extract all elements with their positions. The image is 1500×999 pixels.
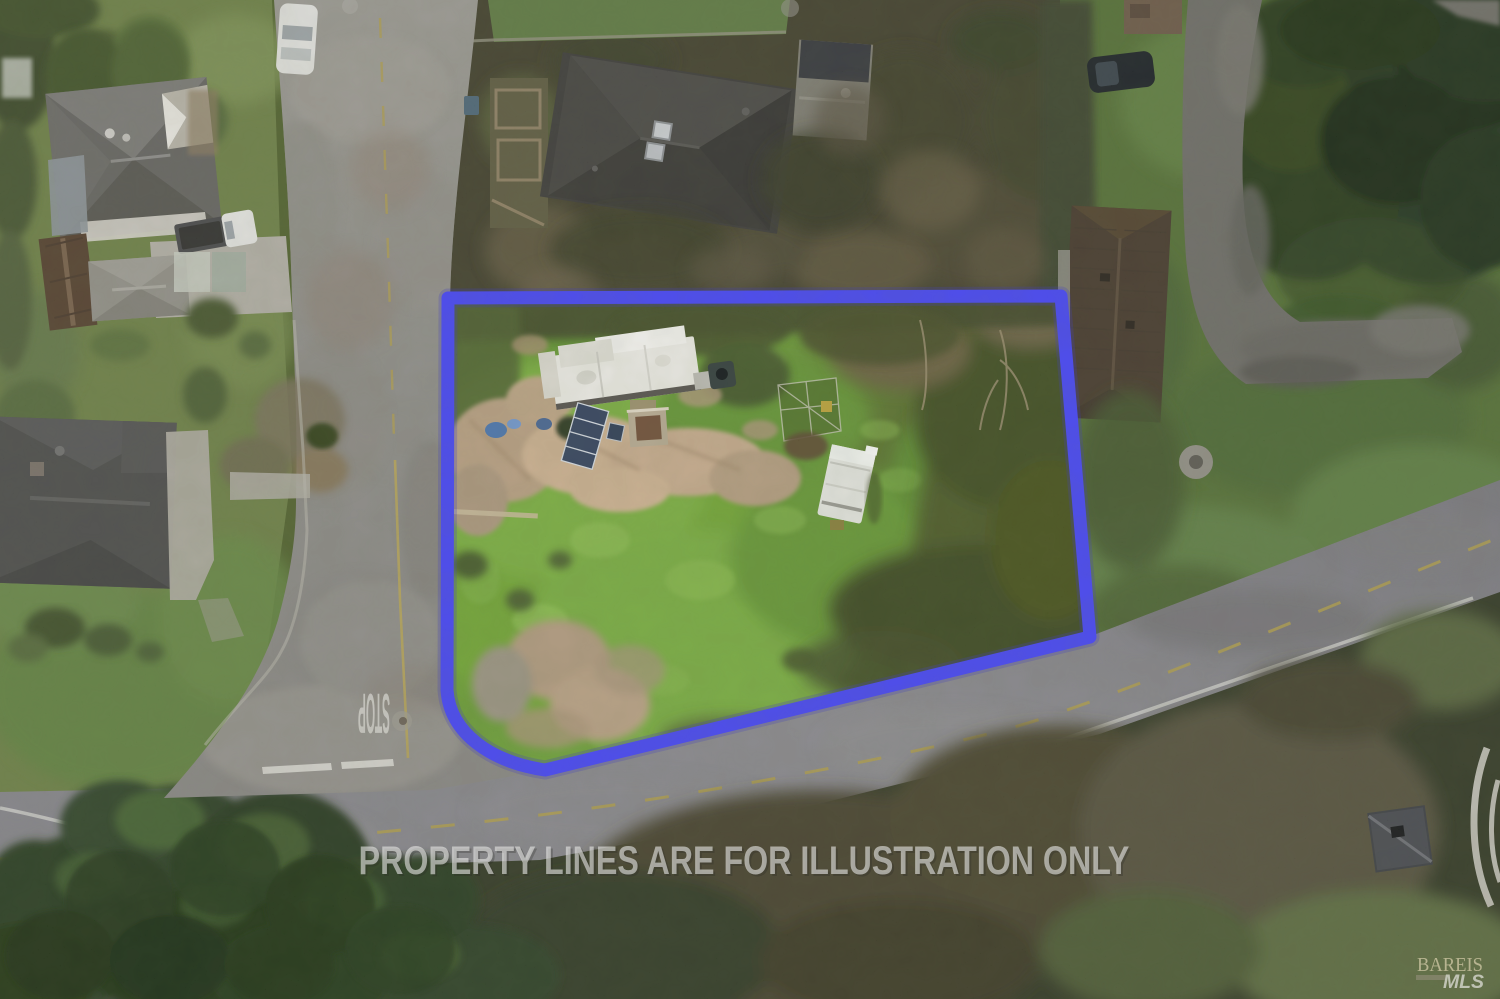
svg-text:MLS: MLS — [1443, 972, 1484, 993]
svg-text:PROPERTY LINES ARE FOR ILLUSTR: PROPERTY LINES ARE FOR ILLUSTRATION ONLY — [359, 838, 1130, 883]
